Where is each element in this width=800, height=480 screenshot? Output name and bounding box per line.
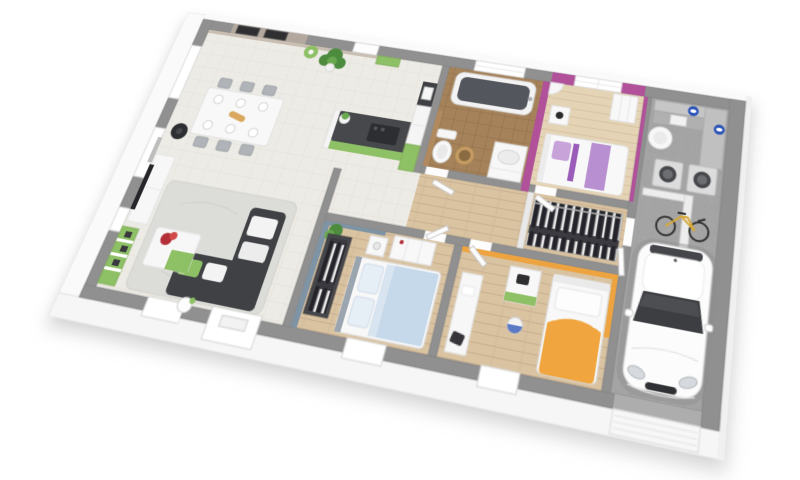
storage-box — [670, 115, 687, 126]
floor-plan-svg — [48, 12, 752, 461]
pillow — [551, 140, 572, 161]
bike-seat — [678, 213, 686, 214]
door-garage — [618, 248, 624, 276]
green-nightstand — [504, 266, 542, 306]
washing-machine-2 — [686, 164, 717, 196]
papers — [461, 285, 475, 296]
house-plan — [48, 12, 752, 461]
floor-plan-scene — [0, 0, 800, 480]
car-mirror-left — [625, 309, 633, 317]
car-mirror-right — [705, 324, 713, 332]
washing-machine-1 — [652, 159, 683, 190]
dresser — [609, 94, 638, 124]
